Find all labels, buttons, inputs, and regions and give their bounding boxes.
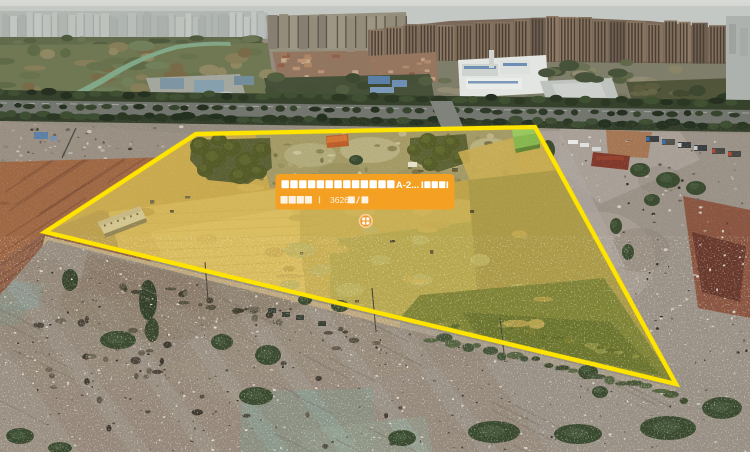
svg-text:A-2...: A-2... [396,180,419,191]
svg-text:3626: 3626 [330,195,349,205]
